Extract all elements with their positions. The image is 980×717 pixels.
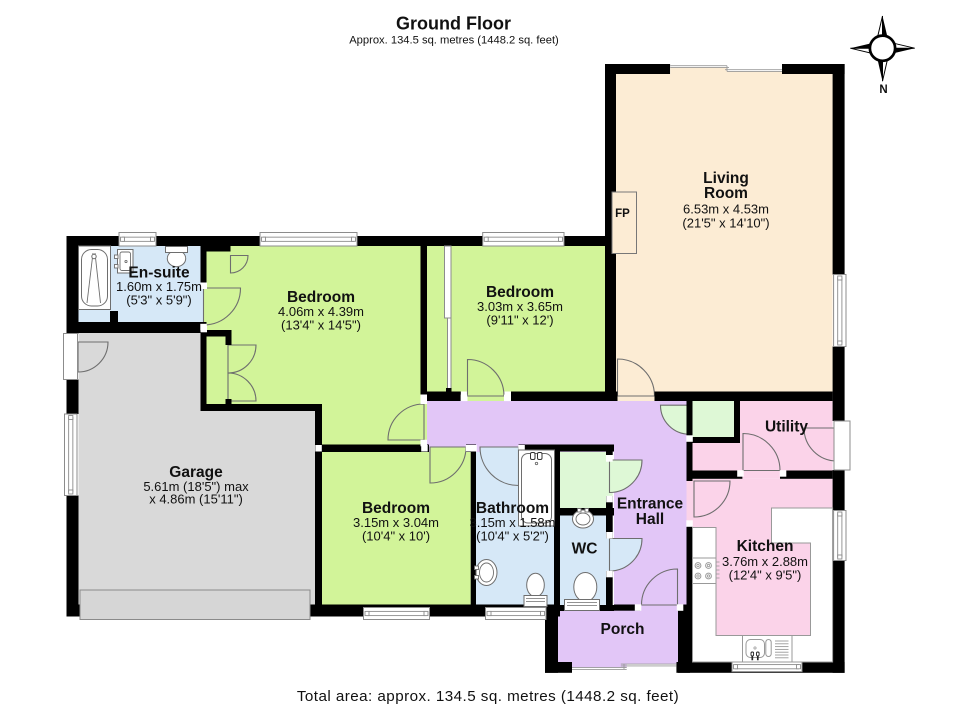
svg-text:(5'3" x 5'9"): (5'3" x 5'9") (126, 293, 192, 308)
svg-text:(12'4" x 9'5"): (12'4" x 9'5") (729, 568, 802, 583)
svg-text:Hall: Hall (636, 511, 664, 528)
svg-text:Total area: approx. 134.5 sq.: Total area: approx. 134.5 sq. metres (14… (297, 688, 679, 705)
svg-text:(9'11" x 12'): (9'11" x 12') (486, 313, 553, 328)
svg-text:WC: WC (572, 541, 598, 558)
svg-text:(10'4" x 5'2"): (10'4" x 5'2") (476, 529, 549, 544)
svg-text:Approx. 134.5 sq. metres (1448: Approx. 134.5 sq. metres (1448.2 sq. fee… (349, 35, 559, 47)
svg-text:N: N (879, 84, 887, 96)
svg-text:(21'5" x 14'10"): (21'5" x 14'10") (682, 216, 769, 231)
svg-text:x 4.86m (15'11"): x 4.86m (15'11") (149, 492, 243, 507)
svg-text:(13'4" x 14'5"): (13'4" x 14'5") (281, 318, 361, 333)
svg-text:Utility: Utility (765, 419, 808, 436)
svg-text:Kitchen: Kitchen (737, 538, 794, 555)
svg-text:Entrance: Entrance (617, 496, 684, 513)
svg-text:6.53m x 4.53m: 6.53m x 4.53m (683, 202, 769, 217)
svg-text:Room: Room (704, 185, 748, 202)
svg-text:Porch: Porch (601, 621, 645, 638)
svg-text:(10'4" x 10'): (10'4" x 10') (362, 529, 430, 544)
svg-text:Ground Floor: Ground Floor (396, 14, 511, 34)
svg-text:FP: FP (615, 208, 630, 220)
